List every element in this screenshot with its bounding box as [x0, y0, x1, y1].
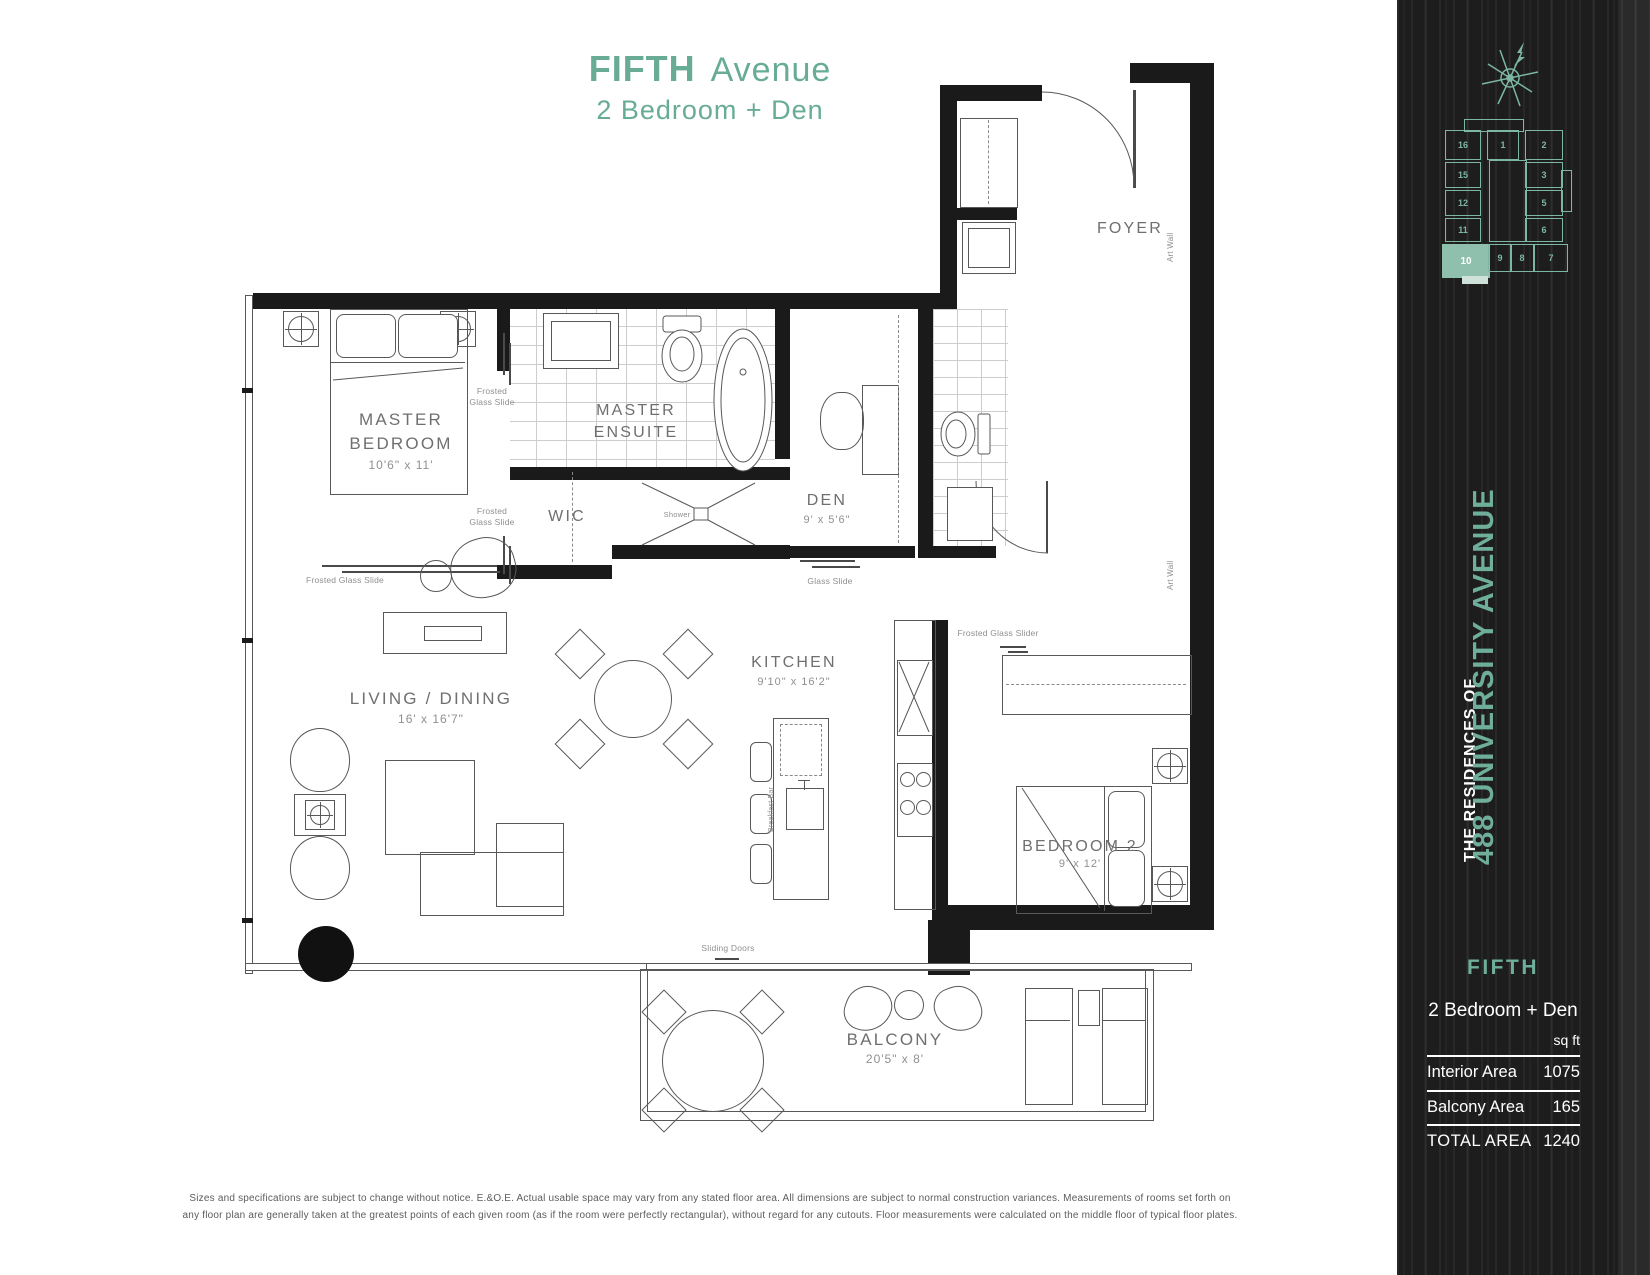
- room-label-den: DEN: [795, 490, 859, 512]
- bedroom-chair-icon: [443, 530, 522, 605]
- rug-icon: [298, 926, 354, 982]
- room-label-foyer: FOYER: [1090, 218, 1170, 240]
- balcony-area-value: 165: [1480, 1098, 1580, 1117]
- lounge-chair-line: [1026, 1020, 1070, 1021]
- wall: [510, 467, 790, 480]
- nightstand-icon: [420, 560, 452, 592]
- burner-icon: [916, 800, 931, 815]
- art-wall-label: Art Wall: [1166, 233, 1176, 262]
- frosted-glass-slide-label: Frosted Glass Slide: [466, 386, 518, 407]
- divider: [1427, 1090, 1580, 1092]
- disclaimer-line2: any floor plan are generally taken at th…: [110, 1207, 1310, 1224]
- slider-door-line: [800, 560, 855, 562]
- room-dims-kitchen: 9'10" x 16'2": [744, 676, 844, 688]
- room-dims-balcony: 20'5" x 8': [835, 1052, 955, 1066]
- keyplan-unit-9: 9: [1488, 244, 1512, 272]
- room-label-balcony: BALCONY: [835, 1028, 955, 1052]
- bedroom2-closet-rod: [1006, 684, 1186, 685]
- tv-console-icon: [420, 852, 564, 916]
- dining-chair-icon: [663, 719, 714, 770]
- room-dims-master-bedroom: 10'6" x 11': [341, 458, 461, 472]
- den-boundary: [898, 315, 899, 543]
- pillow-icon: [398, 314, 458, 358]
- bath2-door-leaf: [1046, 481, 1048, 553]
- slider-door-line: [1000, 646, 1026, 648]
- island-sink-icon: [786, 788, 824, 830]
- wall: [775, 309, 790, 459]
- room-dims-bedroom2: 9' x 12': [1010, 858, 1150, 870]
- keyplan-unit-3: 3: [1525, 162, 1563, 188]
- ceiling-light-icon: [283, 311, 319, 347]
- address-label: 488 UNIVERSITY AVENUE: [1468, 488, 1500, 865]
- sidebar-edge-stripe: [1618, 0, 1650, 1275]
- art-wall-label: Art Wall: [1166, 561, 1176, 590]
- wall: [763, 546, 915, 558]
- burner-icon: [900, 800, 915, 815]
- total-area-value: 1240: [1480, 1132, 1580, 1151]
- burner-icon: [916, 772, 931, 787]
- wall: [957, 208, 1017, 220]
- entry-door-leaf: [1133, 90, 1136, 188]
- keyplan-unit-5: 5: [1525, 190, 1563, 216]
- faucet-icon: [798, 780, 810, 781]
- sideboard-drawer: [424, 626, 482, 641]
- coffee-table-icon: [385, 760, 475, 855]
- burner-icon: [900, 772, 915, 787]
- divider: [1427, 1055, 1580, 1057]
- pillow-icon: [336, 314, 396, 358]
- armchair-icon: [290, 728, 350, 792]
- patio-table-icon: [662, 1010, 764, 1112]
- wall: [940, 88, 957, 309]
- room-label-master-ensuite: MASTER ENSUITE: [576, 400, 696, 445]
- frosted-glass-slide-label: Frosted Glass Slide: [293, 575, 397, 586]
- sidebar-unit-label: sq ft: [1480, 1032, 1580, 1048]
- fridge-icon: [897, 660, 933, 736]
- frosted-slide-door: [509, 343, 511, 385]
- keyplan-unit-12: 12: [1445, 190, 1481, 216]
- slider-door-line: [812, 566, 860, 568]
- keyplan-unit-10-highlighted: 10: [1442, 244, 1490, 278]
- room-dims-den: 9' x 5'6": [787, 514, 867, 526]
- keyplan-unit-1: 1: [1487, 130, 1519, 160]
- slider-door-line: [715, 958, 739, 960]
- room-label-kitchen: KITCHEN: [744, 652, 844, 674]
- lounge-chair-line: [1103, 1020, 1145, 1021]
- room-label-wic: WIC: [537, 506, 597, 528]
- frosted-slide-door: [503, 333, 505, 375]
- balcony-table-icon: [1078, 990, 1100, 1026]
- ceiling-light-icon: [1152, 866, 1188, 902]
- balcony-side-table-icon: [894, 990, 924, 1020]
- room-label-living-dining: LIVING / DINING: [331, 687, 531, 711]
- keyplan-unit-11: 11: [1445, 218, 1481, 242]
- room-label-shower: Shower: [652, 510, 702, 519]
- window-wall-left: [245, 295, 253, 974]
- sidebar-plan-type: 2 Bedroom + Den: [1415, 1000, 1591, 1022]
- entry-door-arc: [1042, 92, 1134, 186]
- frosted-glass-slider-label: Frosted Glass Slider: [952, 628, 1044, 639]
- floor-plan: MASTER BEDROOM 10'6" x 11' MASTER ENSUIT…: [0, 0, 1340, 1275]
- disclaimer-line1: Sizes and specifications are subject to …: [110, 1190, 1310, 1207]
- sidebar-plan-name: FIFTH: [1433, 956, 1573, 980]
- window-mullion: [242, 388, 253, 393]
- room-dims-living-dining: 16' x 16'7": [331, 712, 531, 726]
- slider-door-line: [1008, 651, 1028, 653]
- keyplan-unit-6: 6: [1525, 218, 1563, 242]
- stool-icon: [750, 742, 772, 782]
- interior-area-value: 1075: [1480, 1063, 1580, 1082]
- sidebar: 16 1 2 15 3 12 5 11 6 10 9 8 7 THE RESID…: [1397, 0, 1650, 1275]
- compass-icon: [1478, 40, 1542, 114]
- dishwasher-icon: [780, 724, 822, 776]
- keyplan-unit-8: 8: [1510, 244, 1534, 272]
- keyplan-unit-15: 15: [1445, 162, 1481, 188]
- window-mullion: [242, 638, 253, 643]
- keyplan-core: [1489, 160, 1527, 242]
- wall: [940, 85, 1042, 101]
- dining-table-icon: [594, 660, 672, 738]
- bedroom2-closet: [1002, 655, 1192, 715]
- ceiling-light-icon: [1152, 748, 1188, 784]
- den-chair-icon: [820, 392, 864, 450]
- keyplan-unit-16: 16: [1445, 130, 1481, 160]
- dining-chair-icon: [555, 629, 606, 680]
- lounge-chair-icon: [1102, 988, 1148, 1105]
- bed-line: [331, 362, 465, 363]
- foyer-closet-rod: [988, 120, 989, 204]
- foyer-closet: [960, 118, 1018, 208]
- disclaimer: Sizes and specifications are subject to …: [110, 1190, 1310, 1224]
- keyplan-unit-2: 2: [1525, 130, 1563, 160]
- wall: [918, 309, 933, 557]
- stool-icon: [750, 844, 772, 884]
- armchair-icon: [290, 836, 350, 900]
- table-lamp-icon: [305, 800, 335, 830]
- dining-chair-icon: [555, 719, 606, 770]
- laundry-appliance-door: [968, 228, 1010, 268]
- lounge-chair-icon: [1025, 988, 1073, 1105]
- floorplan-page: FIFTH Avenue 2 Bedroom + Den: [0, 0, 1650, 1275]
- keyplan-unit-10-tab: [1462, 276, 1488, 284]
- bath2-vanity-icon: [947, 487, 993, 541]
- den-desk-icon: [862, 385, 899, 475]
- room-label-bedroom2: BEDROOM 2: [1010, 836, 1150, 858]
- breakfast-bar-label: Breakfast Bar: [768, 787, 776, 832]
- balcony-inner-line: [647, 969, 648, 1112]
- glass-slide-label: Glass Slide: [798, 576, 862, 587]
- sliding-doors-label: Sliding Doors: [698, 943, 758, 954]
- faucet-icon: [804, 780, 805, 790]
- keyplan-unit-7: 7: [1534, 244, 1568, 272]
- divider: [1427, 1124, 1580, 1126]
- window-mullion: [242, 918, 253, 923]
- wall: [1190, 63, 1214, 930]
- room-label-master-bedroom: MASTER BEDROOM: [341, 408, 461, 456]
- wall: [253, 293, 942, 309]
- frosted-glass-slide-label: Frosted Glass Slide: [466, 506, 518, 527]
- ensuite-sink-basin: [551, 321, 611, 361]
- wall: [918, 546, 996, 558]
- dining-chair-icon: [663, 629, 714, 680]
